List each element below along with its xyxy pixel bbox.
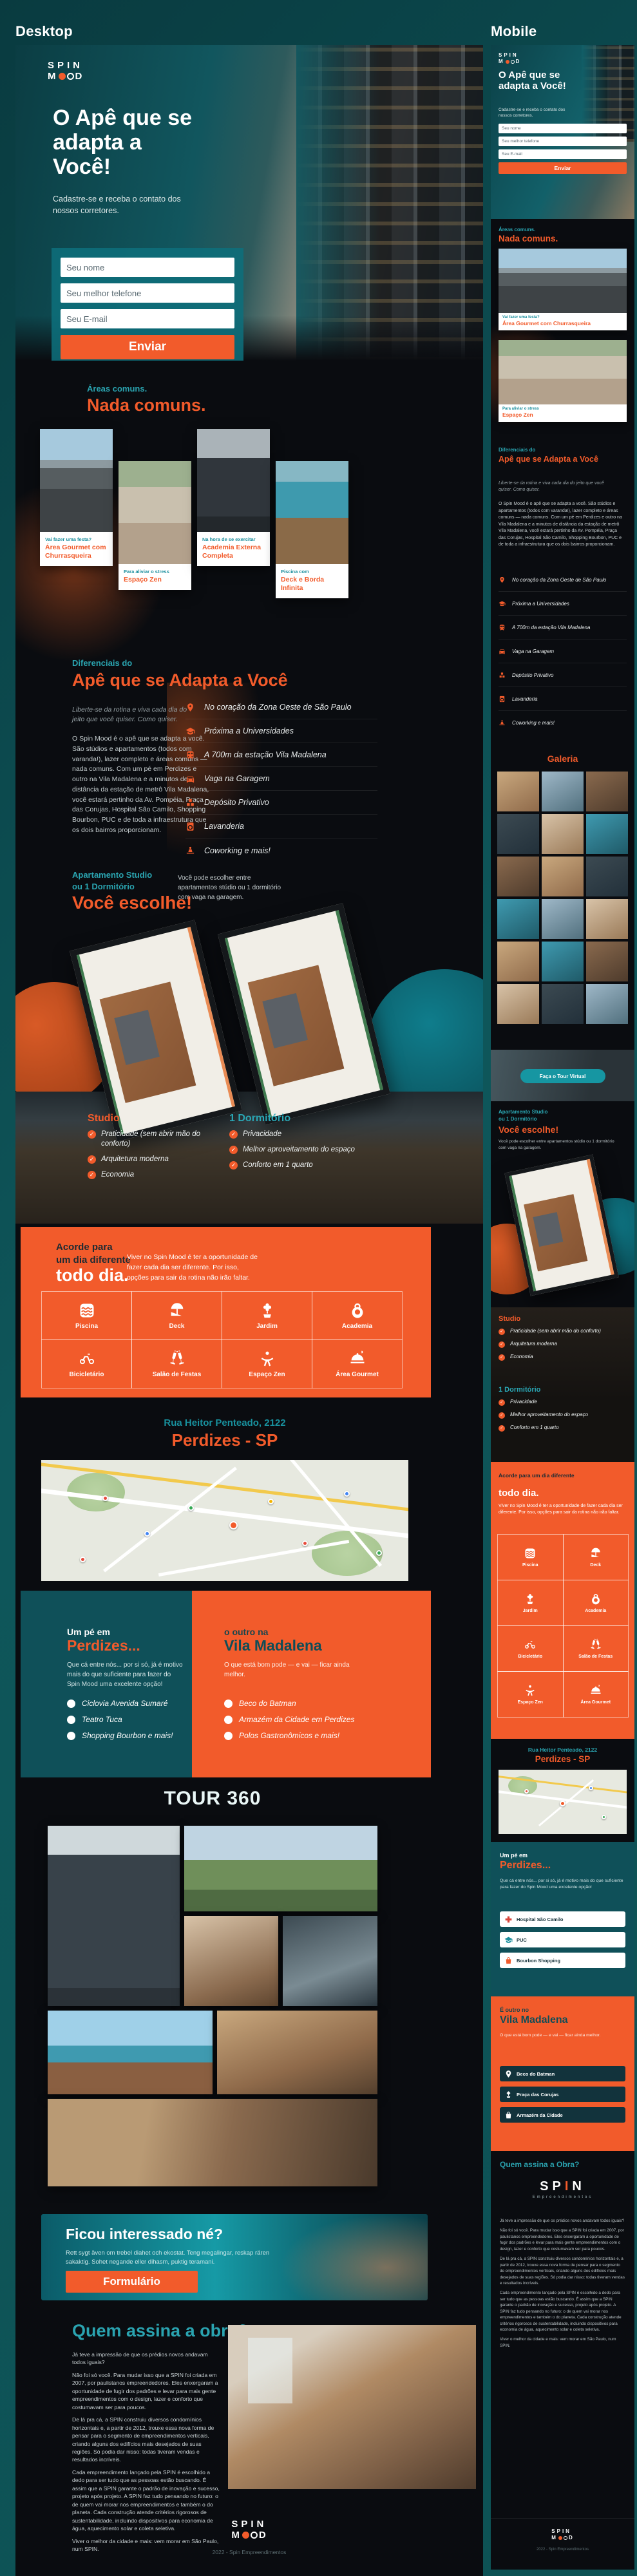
deck-icon: [589, 1547, 602, 1560]
feature-label: No coração da Zona Oeste de São Paulo: [204, 703, 352, 712]
area-card[interactable]: Para aliviar o stressEspaço Zen: [499, 340, 627, 422]
choice-title: Você escolhe!: [499, 1124, 558, 1135]
benefit-item: Privacidade: [499, 1399, 624, 1406]
amenity-label: Piscina: [75, 1323, 98, 1330]
train-icon: [185, 750, 195, 760]
phone-input[interactable]: [499, 137, 627, 146]
poi-chip[interactable]: Armazém da Cidade: [500, 2107, 625, 2123]
name-input[interactable]: [499, 124, 627, 133]
amenity-cell: Espaço Zen: [222, 1340, 312, 1388]
phone-input[interactable]: [61, 283, 234, 303]
logo-orange-dot-icon: [242, 2532, 249, 2539]
common-areas-section: Áreas comuns. Nada comuns. Vai fazer uma…: [491, 219, 634, 438]
spin-builder-logo: SPIN Empreendimentos: [491, 2179, 634, 2199]
benefit-item: Arquitetura moderna: [88, 1155, 210, 1164]
gallery-photo[interactable]: [542, 899, 584, 939]
footer: SPIN MD 2022 - Spin Empreendimentos: [15, 2505, 483, 2576]
property-marker-icon[interactable]: [560, 1801, 566, 1806]
benefit-label: Melhor aproveitamento do espaço: [243, 1145, 355, 1155]
map[interactable]: [499, 1770, 627, 1834]
perdizes-title: Perdizes...: [67, 1637, 140, 1654]
amenities-grid: Piscina Deck Jardim Academia Bicicletári…: [497, 1534, 628, 1717]
gallery-photo[interactable]: [497, 942, 539, 981]
amenity-label: Área Gourmet: [336, 1371, 379, 1378]
gallery-photo[interactable]: [497, 984, 539, 1024]
studio-label: Studio: [88, 1113, 120, 1124]
areas-kicker: Áreas comuns.: [87, 384, 147, 393]
logo-mood-text: MD: [231, 2530, 267, 2540]
wake-title-dark: Acorde paraum dia diferente: [56, 1241, 131, 1266]
benefit-item: Melhor aproveitamento do espaço: [229, 1145, 368, 1155]
submit-button[interactable]: Enviar: [61, 335, 234, 359]
amenity-label: Área Gourmet: [580, 1700, 611, 1705]
area-card[interactable]: Vai fazer uma festa?Área Gourmet com Chu…: [40, 429, 113, 566]
tour-photo[interactable]: [283, 1916, 377, 2006]
tour-photo[interactable]: [217, 2011, 377, 2094]
area-card[interactable]: Para aliviar o stressEspaço Zen: [119, 461, 191, 590]
submit-button[interactable]: Enviar: [499, 162, 627, 174]
madalena-panel: É outro no Vila Madalena O que está bom …: [491, 1996, 634, 2151]
builder-paragraph: Viver o melhor da cidade e mais: vem mor…: [500, 2336, 625, 2349]
features-title: Apê que se Adapta a Você: [499, 455, 605, 464]
gourmet-icon: [348, 1350, 366, 1368]
road: [103, 1466, 237, 1572]
unit-choice-section: Apartamento Studioou 1 Dormitório Você e…: [15, 857, 483, 1224]
gourmet-icon: [589, 1684, 602, 1697]
amenity-label: Jardim: [523, 1609, 538, 1613]
perdizes-panel: Um pé em Perdizes... Que cá entre nós...…: [491, 1842, 634, 1996]
benefit-label: Praticidade (sem abrir mão do conforto): [101, 1130, 210, 1149]
gallery-photo[interactable]: [542, 772, 584, 811]
amenity-label: Deck: [169, 1323, 185, 1330]
lead-form: Enviar: [499, 124, 627, 174]
property-marker-icon[interactable]: [229, 1521, 238, 1529]
logo-spin-text: SPIN: [231, 2519, 267, 2529]
features-kicker: Diferenciais do: [72, 658, 132, 668]
poi-item: Shopping Bourbon e mais!: [67, 1731, 173, 1740]
kettlebell-icon: [589, 1593, 602, 1605]
benefit-label: Economia: [510, 1354, 533, 1360]
poi-chip[interactable]: Hospital São Camilo: [500, 1911, 625, 1927]
card-kicker: Vai fazer uma festa?: [502, 316, 623, 319]
madalena-chips: Beco do Batman Praça das Corujas Armazém…: [500, 2066, 625, 2128]
areas-title: Nada comuns.: [499, 234, 558, 243]
washer-icon: [499, 696, 506, 703]
bike-icon: [524, 1638, 537, 1651]
amenity-cell: Salão de Festas: [131, 1340, 222, 1388]
tour-photo[interactable]: [184, 1916, 278, 2006]
studio-label: Studio: [499, 1315, 520, 1323]
feature-label: A 700m da estação Vila Madalena: [204, 750, 327, 759]
feature-item: Lavanderia: [499, 687, 627, 711]
builder-subtitle: Empreendimentos: [491, 2195, 634, 2199]
spinmood-logo: SPIN MD: [231, 2519, 267, 2540]
copyright: 2022 - Spin Empreendimentos: [15, 2549, 483, 2555]
amenity-cell: Jardim: [497, 1580, 564, 1626]
tour-photo[interactable]: [48, 2011, 213, 2094]
team-photo: [228, 2325, 476, 2489]
feature-item: Próxima a Universidades: [499, 592, 627, 616]
coworking-icon: [499, 719, 506, 726]
logo-ring-icon: [564, 2536, 567, 2540]
amenity-cell: Salão de Festas: [563, 1625, 629, 1672]
benefit-item: Conforto em 1 quarto: [499, 1425, 624, 1432]
unit-benefits-section: Studio Praticidade (sem abrir mão do con…: [491, 1307, 634, 1462]
logo-mood-text: MD: [499, 59, 520, 64]
address-title: Perdizes - SP: [15, 1430, 434, 1450]
gallery-photo[interactable]: [586, 857, 628, 896]
feature-item: A 700m da estação Vila Madalena: [499, 616, 627, 639]
madalena-body: O que está bom pode — e vai — ficar aind…: [224, 1660, 372, 1680]
builder-title: Quem assina a Obra?: [500, 2160, 579, 2169]
builder-text: Já teve a impressão de que os prédios no…: [500, 2218, 625, 2353]
tour-section: TOUR 360: [15, 1777, 483, 2209]
choice-note: Você pode escolher entre apartamentos st…: [178, 873, 290, 902]
boxes-icon: [185, 798, 195, 808]
poi-label: Shopping Bourbon e mais!: [82, 1731, 173, 1740]
builder-paragraph: De lá pra cá, a SPIN construiu diversos …: [72, 2416, 222, 2464]
poi-chip[interactable]: PUC: [500, 1932, 625, 1947]
amenity-cell: Bicicletário: [497, 1625, 564, 1672]
perdizes-body: Que cá entre nós... por si só, já é moti…: [500, 1878, 623, 1891]
gallery-photo[interactable]: [497, 814, 539, 854]
areas-kicker: Áreas comuns.: [499, 227, 535, 232]
pool-icon: [78, 1302, 96, 1320]
map-pin-icon[interactable]: [376, 1550, 382, 1556]
feature-item: No coração da Zona Oeste de São Paulo: [185, 696, 377, 719]
wake-title-dark: Acorde para um dia diferente: [499, 1472, 575, 1479]
amenity-label: Bicicletário: [70, 1371, 104, 1378]
mobile-label: Mobile: [491, 23, 537, 40]
studio-benefits: Praticidade (sem abrir mão do conforto) …: [88, 1130, 210, 1186]
builder-title: Quem assina a obra?: [72, 2321, 248, 2341]
features-body: O Spin Mood é o apê que se adapta a você…: [499, 501, 625, 549]
choice-title: Você escolhe!: [72, 893, 192, 913]
map-pin-icon[interactable]: [102, 1495, 108, 1501]
choice-kicker: Apartamento Studioou 1 Dormitório: [499, 1109, 547, 1123]
neighborhoods-section: Um pé em Perdizes... Que cá entre nós...…: [15, 1591, 483, 1777]
poi-item: Polos Gastronômicos e mais!: [224, 1731, 354, 1740]
benefit-item: Conforto em 1 quarto: [229, 1160, 368, 1170]
virtual-tour-button[interactable]: Faça o Tour Virtual: [520, 1069, 605, 1083]
amenities-section: Acorde paraum dia diferente todo dia. Vi…: [15, 1224, 483, 1401]
perdizes-title: Perdizes...: [500, 1860, 551, 1871]
amenity-cell: Bicicletário: [41, 1340, 132, 1388]
poi-label: Beco do Batman: [239, 1699, 296, 1708]
washer-icon: [185, 822, 195, 831]
hero-subtitle: Cadastre-se e receba o contato dos nosso…: [499, 107, 579, 118]
tour-title: TOUR 360: [15, 1788, 410, 1810]
amenity-label: Academia: [585, 1609, 606, 1613]
card-kicker: Na hora de se exercitar: [202, 536, 265, 542]
choice-kicker: Apartamento Studioou 1 Dormitório: [72, 869, 152, 892]
map-pin-icon[interactable]: [188, 1505, 194, 1511]
poi-chip[interactable]: Praça das Corujas: [500, 2087, 625, 2102]
area-card[interactable]: Na hora de se exercitarAcademia Externa …: [197, 429, 270, 566]
gallery-photo[interactable]: [586, 942, 628, 981]
car-icon: [185, 774, 195, 784]
benefit-label: Conforto em 1 quarto: [243, 1160, 313, 1170]
benefit-label: Arquitetura moderna: [101, 1155, 169, 1164]
map-pin-icon[interactable]: [80, 1557, 86, 1562]
wake-title-white: todo dia.: [499, 1488, 539, 1499]
features-title: Apê que se Adapta a Você: [72, 670, 288, 690]
benefit-label: Privacidade: [243, 1130, 281, 1139]
car-icon: [499, 648, 506, 655]
card-kicker: Para aliviar o stress: [124, 569, 186, 574]
train-icon: [499, 624, 506, 631]
gallery-section: Galeria: [491, 747, 634, 1050]
benefit-item: Privacidade: [229, 1130, 368, 1139]
amenity-label: Espaço Zen: [249, 1371, 285, 1378]
bullet-icon: [224, 1732, 233, 1740]
hero-title: O Apê que se adapta a Você!: [53, 106, 195, 179]
party-icon: [168, 1350, 186, 1368]
poi-label: Hospital São Camilo: [517, 1917, 564, 1922]
area-card[interactable]: Piscina comDeck e Borda Infinita: [276, 461, 348, 598]
tour-photo[interactable]: [48, 2099, 377, 2186]
map-pin-icon[interactable]: [589, 1786, 593, 1790]
amenity-label: Espaço Zen: [518, 1700, 543, 1705]
card-title: Área Gourmet com Churrasqueira: [45, 544, 108, 560]
cta-title: Ficou interessado né?: [66, 2226, 223, 2243]
feature-label: Coworking e mais!: [512, 720, 555, 726]
card-kicker: Para aliviar o stress: [502, 407, 623, 411]
poi-label: Polos Gastronômicos e mais!: [239, 1731, 339, 1740]
email-input[interactable]: [499, 149, 627, 159]
logo-orange-dot-icon: [558, 2536, 562, 2540]
zen-icon: [524, 1684, 537, 1697]
perdizes-kicker: Um pé em: [500, 1852, 528, 1859]
check-icon: [229, 1161, 238, 1170]
logo-ring-icon: [511, 60, 515, 64]
wake-title-white: todo dia.: [56, 1265, 128, 1285]
feature-item: Depósito Privativo: [185, 791, 377, 815]
park-icon: [504, 2090, 513, 2099]
feature-item: A 700m da estação Vila Madalena: [185, 743, 377, 767]
amenity-cell: Área Gourmet: [563, 1671, 629, 1718]
builder-paragraph: De lá pra cá, a SPIN construiu diversos …: [500, 2256, 625, 2286]
desktop-mockup: SPIN MD O Apê que se adapta a Você! Cada…: [15, 45, 483, 2576]
gallery-photo[interactable]: [586, 772, 628, 811]
desktop-label: Desktop: [15, 23, 73, 40]
address-kicker: Rua Heitor Penteado, 2122: [15, 1417, 434, 1428]
one-bedroom-benefits: Privacidade Melhor aproveitamento do esp…: [229, 1130, 368, 1176]
orange-panel: Acorde paraum dia diferente todo dia. Vi…: [21, 1227, 431, 1397]
map-pin-icon[interactable]: [524, 1789, 529, 1794]
perdizes-chips: Hospital São Camilo PUC Bourbon Shopping: [500, 1911, 625, 1973]
card-title: Academia Externa Completa: [202, 544, 265, 560]
check-icon: [88, 1155, 96, 1164]
bullet-icon: [67, 1700, 75, 1708]
hospital-icon: [504, 1915, 513, 1924]
bullet-icon: [224, 1700, 233, 1708]
map-pin-icon[interactable]: [302, 1540, 308, 1546]
feature-item: Vaga na Garagem: [185, 767, 377, 791]
builder-paragraph: Já teve a impressão de que os prédios no…: [72, 2351, 222, 2367]
feature-item: Depósito Privativo: [499, 663, 627, 687]
feature-item: Vaga na Garagem: [499, 639, 627, 663]
location-section: Rua Heitor Penteado, 2122 Perdizes - SP: [491, 1739, 634, 1842]
mobile-mockup: SPIN MD O Apê que se adapta a Você! Cada…: [491, 45, 634, 2570]
builder-paragraph: Já teve a impressão de que os prédios no…: [500, 2218, 625, 2224]
graduation-cap-icon: [185, 726, 195, 736]
email-input[interactable]: [61, 309, 234, 328]
benefit-label: Conforto em 1 quarto: [510, 1425, 559, 1431]
benefit-item: Praticidade (sem abrir mão do conforto): [88, 1130, 210, 1149]
map-pin-icon[interactable]: [344, 1491, 350, 1497]
gallery-photo[interactable]: [542, 984, 584, 1024]
features-lead: Liberte-se da rotina e viva cada dia do …: [499, 480, 614, 493]
feature-item: Lavanderia: [185, 815, 377, 838]
poi-item: Teatro Tuca: [67, 1715, 173, 1724]
amenity-label: Salão de Festas: [153, 1371, 202, 1378]
poi-label: Ciclovia Avenida Sumaré: [82, 1699, 167, 1708]
map-pin-icon[interactable]: [268, 1499, 274, 1504]
poi-chip[interactable]: Bourbon Shopping: [500, 1953, 625, 1968]
one-bedroom-label: 1 Dormitório: [499, 1386, 540, 1394]
address-kicker: Rua Heitor Penteado, 2122: [491, 1747, 634, 1753]
card-title: Espaço Zen: [124, 576, 186, 584]
poi-item: Beco do Batman: [224, 1699, 354, 1708]
area-card[interactable]: Vai fazer uma festa?Área Gourmet com Chu…: [499, 249, 627, 330]
university-icon: [504, 1936, 513, 1944]
deck-icon: [168, 1302, 186, 1320]
perdizes-list: Ciclovia Avenida Sumaré Teatro Tuca Shop…: [67, 1699, 173, 1747]
zen-icon: [258, 1350, 276, 1368]
amenities-section: Acorde para um dia diferente todo dia. V…: [491, 1462, 634, 1739]
one-bedroom-label: 1 Dormitório: [229, 1113, 290, 1124]
features-lead: Liberte-se da rotina e viva cada dia do …: [72, 705, 201, 724]
check-icon: [88, 1171, 96, 1179]
feature-label: Próxima a Universidades: [512, 601, 569, 607]
gallery-photo[interactable]: [542, 814, 584, 854]
feature-label: Depósito Privativo: [512, 672, 553, 678]
map[interactable]: [41, 1460, 408, 1581]
unit-choice-section: Apartamento Studioou 1 Dormitório Você e…: [491, 1101, 634, 1307]
amenity-cell: Área Gourmet: [312, 1340, 403, 1388]
feature-label: Depósito Privativo: [204, 798, 269, 807]
studio-benefits: Praticidade (sem abrir mão do conforto) …: [499, 1328, 624, 1367]
feature-label: Coworking e mais!: [204, 846, 271, 855]
wake-body: Viver no Spin Mood é ter a oportunidade …: [499, 1503, 624, 1516]
poi-item: Armazém da Cidade em Perdizes: [224, 1715, 354, 1724]
gallery-photo[interactable]: [497, 772, 539, 811]
builder-paragraph: Cada empreendimento lançado pela SPIN é …: [500, 2290, 625, 2333]
feature-label: No coração da Zona Oeste de São Paulo: [512, 577, 606, 583]
gourmet-photo: [499, 249, 627, 313]
builder-section: Quem assina a Obra? SPIN Empreendimentos…: [491, 2151, 634, 2518]
one-bedroom-benefits: Privacidade Melhor aproveitamento do esp…: [499, 1399, 624, 1437]
gallery-grid: [497, 772, 628, 1024]
gallery-photo[interactable]: [542, 942, 584, 981]
features-section: Diferenciais do Apê que se Adapta a Você…: [491, 438, 634, 747]
gallery-photo[interactable]: [497, 899, 539, 939]
logo-orange-dot-icon: [506, 60, 509, 64]
bike-icon: [78, 1350, 96, 1368]
perdizes-body: Que cá entre nós... por si só, já é moti…: [67, 1660, 183, 1689]
logo-ring-icon: [251, 2532, 258, 2539]
amenity-cell: Piscina: [41, 1291, 132, 1340]
madalena-kicker: o outro na: [224, 1627, 268, 1637]
gallery-photo[interactable]: [586, 984, 628, 1024]
bullet-icon: [67, 1716, 75, 1724]
spinmood-logo: SPIN MD: [551, 2529, 573, 2541]
mobile-hero-section: SPIN MD O Apê que se adapta a Você! Cada…: [491, 45, 634, 219]
map-pin-icon[interactable]: [602, 1815, 606, 1819]
tour-photo[interactable]: [184, 1826, 377, 1911]
logo-ring-icon: [67, 73, 74, 80]
road: [499, 1790, 627, 1810]
common-areas-section: Áreas comuns. Nada comuns. Vai fazer uma…: [15, 361, 483, 644]
lead-form: Enviar: [52, 248, 243, 361]
amenities-grid: Piscina Deck Jardim Academia Bicicletári…: [41, 1291, 402, 1388]
choice-note: Você pode escolher entre apartamentos st…: [499, 1139, 621, 1151]
map-pin-icon[interactable]: [144, 1531, 150, 1537]
features-section: Diferenciais do Apê que se Adapta a Você…: [15, 644, 483, 857]
address-title: Perdizes - SP: [491, 1754, 634, 1764]
spinmood-logo: SPIN MD: [499, 53, 520, 64]
card-kicker: Vai fazer uma festa?: [45, 536, 108, 542]
form-button[interactable]: Formulário: [66, 2271, 198, 2293]
check-icon: [229, 1130, 238, 1139]
garden-icon: [258, 1302, 276, 1320]
logo-mood-text: MD: [551, 2535, 573, 2541]
check-icon: [499, 1354, 505, 1361]
tour-photo[interactable]: [48, 1826, 180, 2006]
gallery-title: Galeria: [491, 753, 634, 764]
check-icon: [499, 1412, 505, 1419]
gallery-photo[interactable]: [542, 857, 584, 896]
kettlebell-icon: [348, 1302, 366, 1320]
gourmet-photo: [40, 429, 113, 532]
benefit-label: Arquitetura moderna: [510, 1341, 557, 1347]
logo-spin-text: SPIN: [499, 53, 520, 58]
feature-label: Lavanderia: [512, 696, 538, 702]
hero-title: O Apê que se adapta a Você!: [499, 70, 584, 92]
virtual-tour-strip: Faça o Tour Virtual: [491, 1050, 634, 1101]
amenity-label: Piscina: [522, 1563, 538, 1567]
feature-item: Coworking e mais!: [499, 711, 627, 735]
perdizes-panel: Um pé em Perdizes... Que cá entre nós...…: [21, 1591, 192, 1777]
footer: SPIN MD 2022 - Spin Empreendimentos: [491, 2518, 634, 2570]
benefit-label: Economia: [101, 1170, 134, 1180]
feature-item: Próxima a Universidades: [185, 719, 377, 743]
gallery-photo[interactable]: [586, 814, 628, 854]
zen-photo: [499, 340, 627, 404]
check-icon: [229, 1146, 238, 1154]
logo-orange-dot-icon: [59, 73, 66, 80]
amenity-cell: Academia: [312, 1291, 403, 1340]
builder-paragraph: Não foi só você. Para mudar isso que a S…: [72, 2371, 222, 2411]
amenity-label: Jardim: [256, 1323, 278, 1330]
check-icon: [88, 1130, 96, 1139]
logo-spin-text: SPIN: [48, 61, 83, 70]
benefit-label: Melhor aproveitamento do espaço: [510, 1412, 588, 1418]
poi-label: Praça das Corujas: [517, 2092, 558, 2098]
logo-accent: I: [565, 2179, 573, 2193]
madalena-body: O que está bom pode — e vai — ficar aind…: [500, 2032, 623, 2039]
check-icon: [499, 1425, 505, 1432]
copyright: 2022 - Spin Empreendimentos: [491, 2548, 634, 2552]
gallery-photo[interactable]: [586, 899, 628, 939]
poi-label: Armazém da Cidade: [517, 2112, 563, 2118]
poi-chip[interactable]: Beco do Batman: [500, 2066, 625, 2081]
benefit-label: Privacidade: [510, 1399, 537, 1405]
gallery-photo[interactable]: [497, 857, 539, 896]
name-input[interactable]: [61, 258, 234, 277]
building-photo: [296, 45, 483, 361]
